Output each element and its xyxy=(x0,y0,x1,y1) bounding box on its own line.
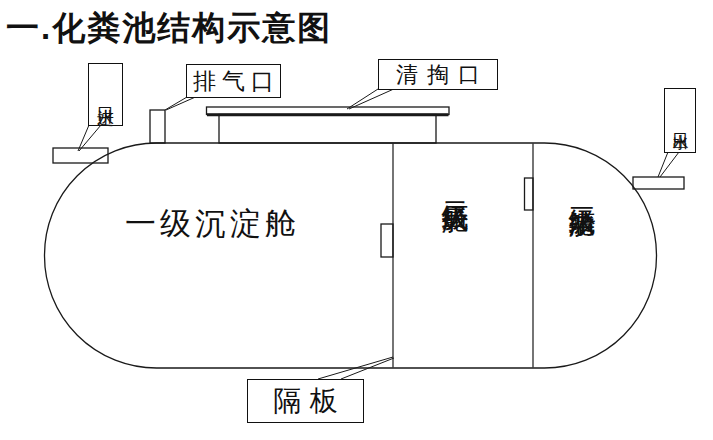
inlet-label-box: 进水口 xyxy=(88,63,123,126)
chamber-3-label: 三级清水舱 xyxy=(564,186,600,191)
partition-2-opening xyxy=(525,178,534,210)
outlet-pipe xyxy=(633,177,684,189)
tank-body-outline xyxy=(45,143,657,368)
cleanout-leader-line xyxy=(347,89,378,109)
vent-pipe xyxy=(150,110,165,143)
inlet-pipe xyxy=(53,148,108,163)
vent-leader-line xyxy=(165,97,187,110)
inlet-leader-line xyxy=(78,125,89,151)
cleanout-leader-line xyxy=(349,88,396,109)
chamber-2-label: 二级厌氧舱 xyxy=(437,182,473,187)
inlet-leader-line xyxy=(79,125,101,151)
cleanout-neck xyxy=(219,115,436,144)
cleanout-label-box: 清掏口 xyxy=(378,59,498,90)
page-title: 一.化粪池结构示意图 xyxy=(6,6,332,51)
baffle-label-box: 隔板 xyxy=(247,379,364,423)
outlet-label-box: 出水口 xyxy=(664,88,696,153)
partition-1-opening xyxy=(381,224,393,257)
baffle-label: 隔板 xyxy=(266,382,346,420)
vent-label-box: 排气口 xyxy=(186,64,281,98)
cleanout-label: 清掏口 xyxy=(387,60,489,90)
vent-label: 排气口 xyxy=(187,66,280,97)
septic-tank-diagram: 一.化粪池结构示意图 进水口 排气口 清掏口 出水口 隔板 一级沉淀舱 二级厌氧… xyxy=(0,0,713,440)
chamber-1-label: 一级沉淀舱 xyxy=(125,203,300,245)
